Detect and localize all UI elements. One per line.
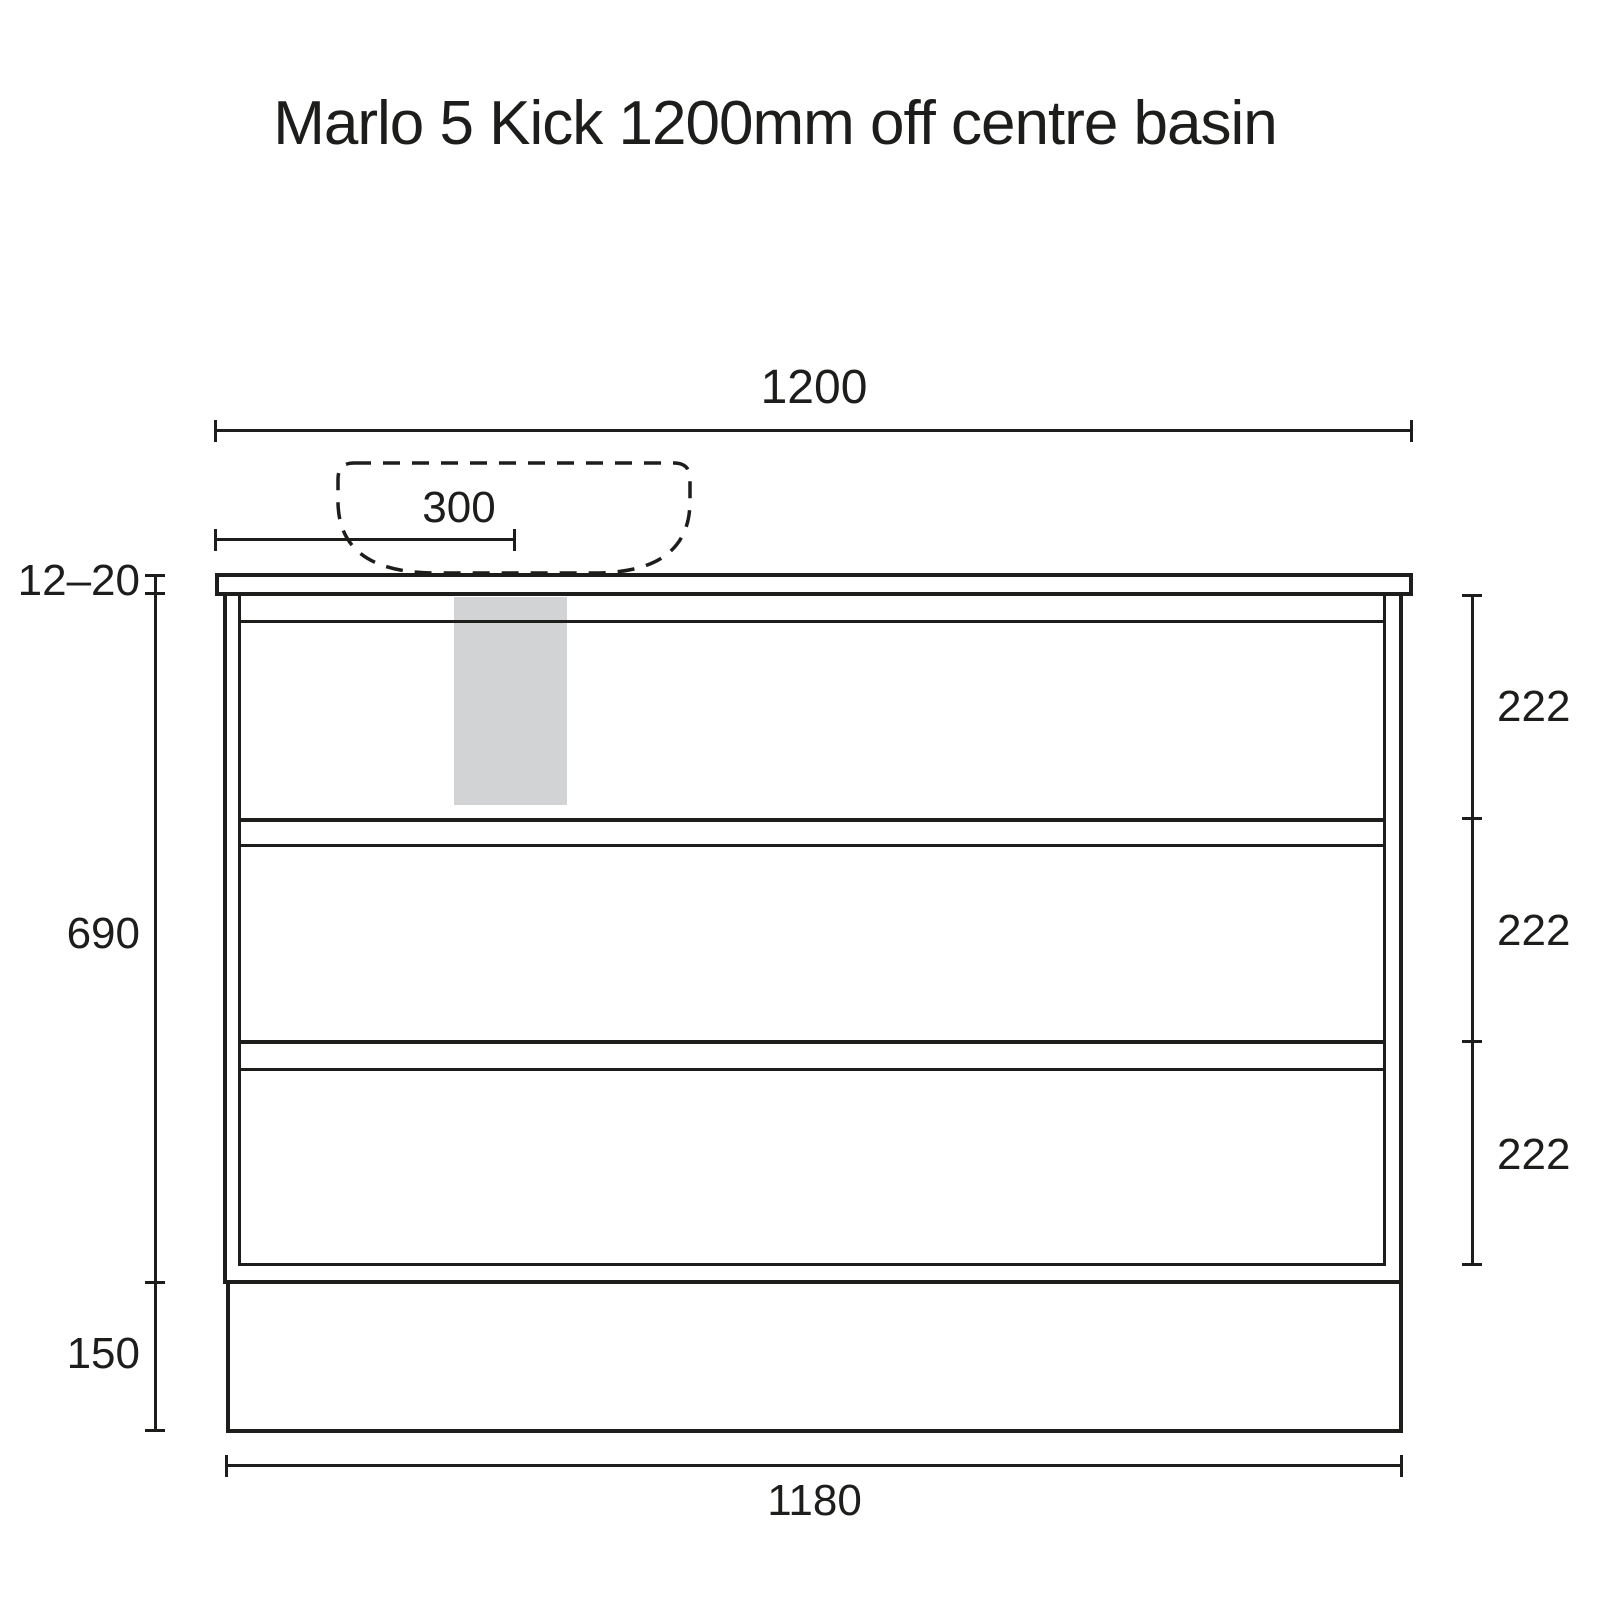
dim-base-width-tick-left [225, 1455, 228, 1477]
dim-overall-width-tick-right [1410, 420, 1413, 442]
drawer-height-label-1: 222 [1497, 683, 1570, 731]
dim-benchtop-tick-bottom [145, 592, 165, 595]
dim-drawer-tick-1 [1462, 594, 1482, 597]
benchtop [215, 573, 1413, 596]
dim-drawer-tick-3 [1462, 1040, 1482, 1043]
cabinet-body [223, 595, 1403, 1284]
cabinet-inner-right-line [1383, 595, 1386, 1266]
dim-left-line [154, 575, 157, 1432]
cabinet-height-label: 690 [0, 910, 140, 958]
dim-base-width-line [226, 1464, 1403, 1467]
dim-overall-width-line [215, 429, 1413, 432]
dim-benchtop-tick-top [145, 574, 165, 577]
dim-kick-tick-bottom [145, 1429, 165, 1432]
drawer-2-bottom-line [241, 1040, 1383, 1044]
dim-basin-offset-label: 300 [389, 484, 529, 532]
dim-base-width-tick-right [1400, 1455, 1403, 1477]
drawing-title: Marlo 5 Kick 1200mm off centre basin [100, 88, 1450, 159]
cabinet-inner-bottom-line [238, 1263, 1386, 1266]
dim-basin-offset-tick-left [214, 529, 217, 551]
dim-drawer-tick-4 [1462, 1263, 1482, 1266]
drawer-2-top-line [241, 844, 1383, 847]
kick-height-label: 150 [0, 1330, 140, 1378]
dim-right-line [1471, 595, 1474, 1266]
dim-drawer-tick-2 [1462, 817, 1482, 820]
cabinet-inner-left-line [238, 595, 241, 1266]
drawer-1-top-line [241, 620, 1383, 623]
dim-overall-width-tick-left [214, 420, 217, 442]
benchtop-thickness-label: 12–20 [0, 557, 140, 605]
drawer-height-label-3: 222 [1497, 1131, 1570, 1179]
drawer-1-bottom-line [241, 818, 1383, 822]
kick-panel [226, 1284, 1403, 1433]
drawer-3-top-line [241, 1068, 1383, 1071]
dim-overall-width-label: 1200 [215, 362, 1413, 415]
drawer-height-label-2: 222 [1497, 907, 1570, 955]
dim-basin-offset-line [215, 538, 516, 541]
dim-base-width-label: 1180 [226, 1477, 1403, 1525]
technical-drawing: Marlo 5 Kick 1200mm off centre basin 120… [0, 0, 1600, 1600]
dim-cabinet-tick-bottom [145, 1281, 165, 1284]
